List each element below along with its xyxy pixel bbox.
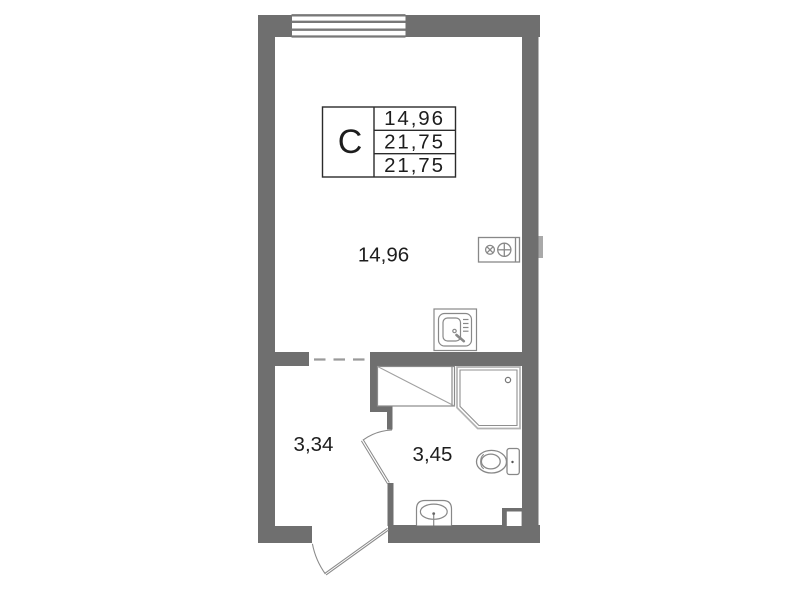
svg-text:21,75: 21,75 [384,154,445,177]
svg-text:14,96: 14,96 [358,244,409,267]
svg-text:3,34: 3,34 [294,433,334,456]
svg-text:21,75: 21,75 [384,130,445,153]
svg-text:3,45: 3,45 [413,443,453,466]
svg-text:C: C [338,123,363,161]
svg-text:14,96: 14,96 [384,107,445,130]
